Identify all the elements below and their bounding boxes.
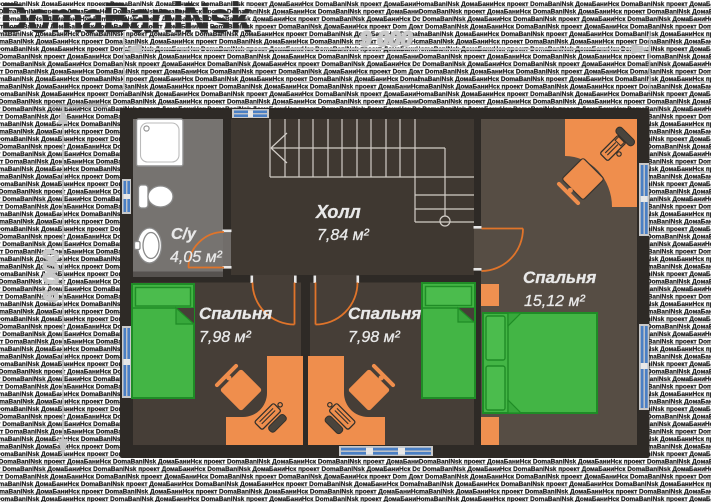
svg-text:15,12 м²: 15,12 м²	[524, 293, 585, 310]
svg-text:9 000: 9 000	[360, 28, 413, 51]
svg-text:Холл: Холл	[315, 202, 361, 222]
svg-text:7,84 м²: 7,84 м²	[317, 227, 370, 244]
svg-text:7,98 м²: 7,98 м²	[348, 329, 401, 346]
svg-text:Спальня: Спальня	[523, 268, 596, 287]
svg-text:4,05 м²: 4,05 м²	[170, 249, 223, 266]
svg-text:6 000: 6 000	[40, 249, 63, 302]
svg-text:7,98 м²: 7,98 м²	[199, 329, 252, 346]
svg-text:С/у: С/у	[171, 226, 197, 243]
svg-text:Спальня: Спальня	[199, 304, 272, 323]
svg-text:Спальня: Спальня	[348, 304, 421, 323]
